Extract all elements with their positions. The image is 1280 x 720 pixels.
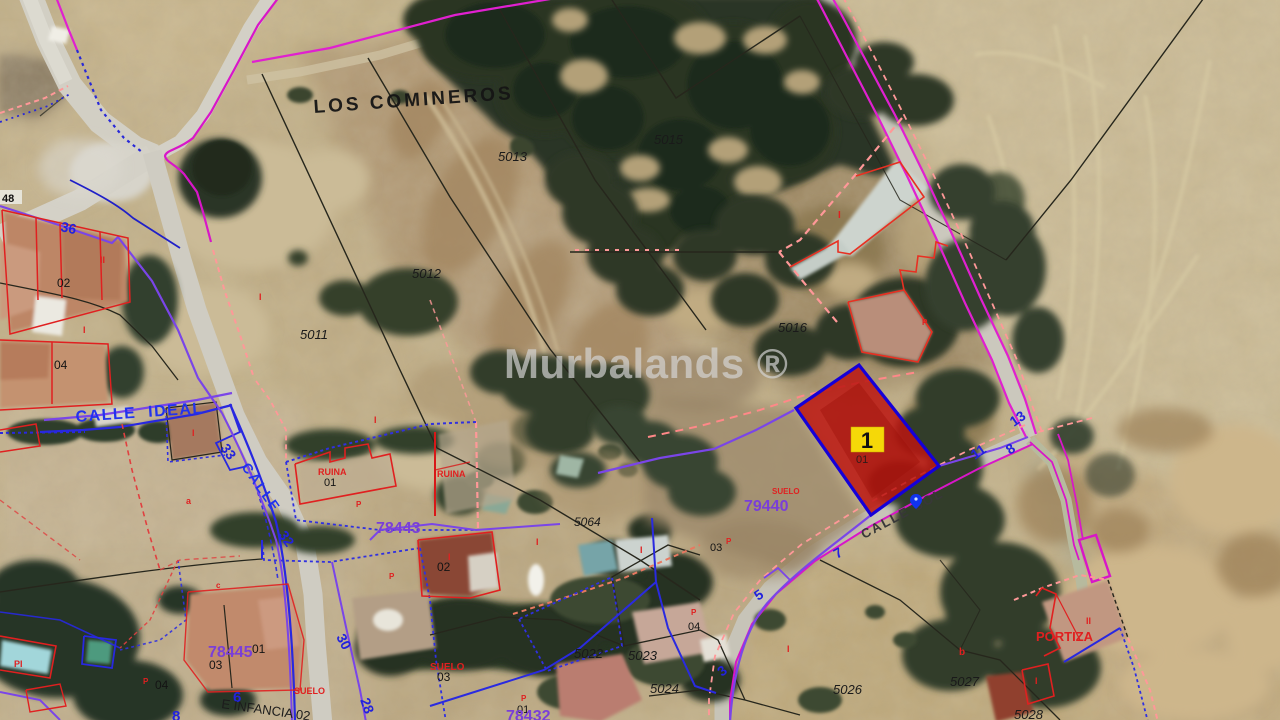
svg-text:78432: 78432 [506,708,551,720]
svg-text:RUINA: RUINA [318,467,347,477]
svg-text:RUINA: RUINA [437,469,466,479]
svg-text:02: 02 [57,276,71,290]
svg-text:Murbalands ®: Murbalands ® [504,340,788,387]
svg-text:04: 04 [688,621,700,633]
svg-text:b: b [959,647,965,658]
svg-text:P: P [356,500,362,509]
svg-text:5012: 5012 [412,266,442,281]
svg-text:PORTIZA: PORTIZA [1036,629,1094,644]
svg-text:5016: 5016 [778,320,808,335]
svg-text:02: 02 [437,560,451,574]
svg-text:5013: 5013 [498,149,528,164]
svg-text:I: I [83,325,86,335]
svg-text:II: II [1086,616,1091,626]
svg-text:78445: 78445 [208,644,253,661]
svg-text:5024: 5024 [650,681,679,696]
svg-text:P: P [922,318,928,327]
svg-text:78443: 78443 [376,520,421,537]
svg-text:P: P [726,537,732,546]
svg-text:P: P [691,608,697,617]
svg-text:01: 01 [252,642,266,656]
svg-text:P: P [143,677,149,686]
svg-text:1: 1 [861,428,873,453]
svg-text:II: II [100,255,105,265]
svg-text:79440: 79440 [744,498,789,515]
svg-text:5011: 5011 [300,327,328,342]
svg-text:I: I [192,428,195,438]
svg-text:5022: 5022 [574,646,604,661]
svg-text:5064: 5064 [574,515,601,529]
svg-text:48: 48 [2,193,14,205]
svg-text:P: P [521,694,527,703]
svg-text:PI: PI [14,659,23,669]
svg-text:SUELO: SUELO [430,662,465,673]
svg-text:I: I [787,644,790,654]
svg-text:5015: 5015 [654,132,684,147]
svg-text:5026: 5026 [833,682,863,697]
svg-text:03: 03 [710,542,722,554]
svg-text:I: I [536,537,539,547]
svg-text:01: 01 [856,454,868,466]
svg-text:I: I [259,292,262,302]
svg-text:P: P [389,572,395,581]
svg-text:04: 04 [54,358,68,372]
svg-text:I: I [640,545,643,555]
svg-text:01: 01 [324,477,336,489]
svg-text:I: I [448,552,451,562]
svg-text:5027: 5027 [950,674,980,689]
svg-text:I: I [838,210,841,221]
svg-text:I: I [1035,676,1038,686]
svg-text:c: c [216,581,221,590]
svg-text:5028: 5028 [1014,707,1044,720]
svg-text:04: 04 [155,678,169,692]
svg-text:I: I [374,415,377,425]
svg-text:SUELO: SUELO [294,686,325,696]
svg-text:5023: 5023 [628,648,658,663]
svg-text:8: 8 [172,708,180,720]
svg-text:SUELO: SUELO [772,487,800,496]
